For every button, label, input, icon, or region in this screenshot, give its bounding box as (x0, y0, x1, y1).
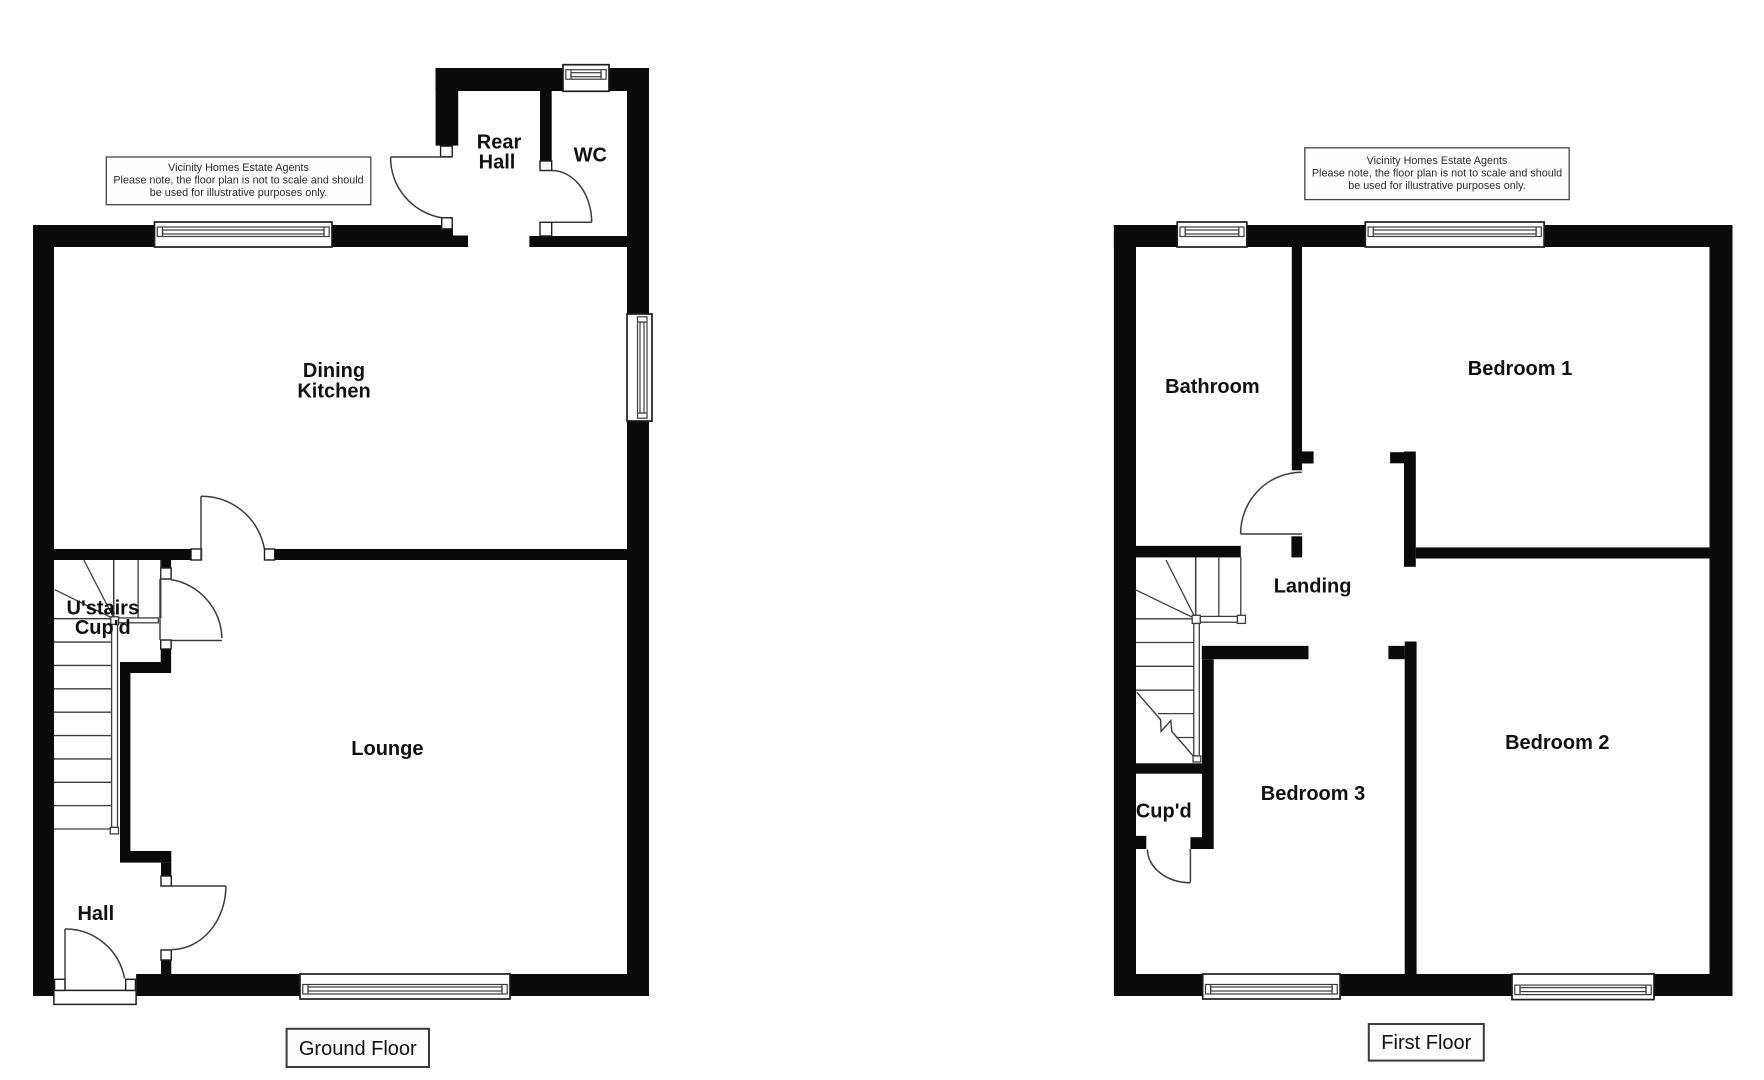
svg-text:Please note, the floor plan is: Please note, the floor plan is not to sc… (113, 175, 363, 187)
svg-text:Cup'd: Cup'd (1136, 801, 1192, 823)
svg-text:Cup'd: Cup'd (75, 617, 131, 639)
svg-text:Bathroom: Bathroom (1165, 376, 1259, 398)
svg-text:Lounge: Lounge (351, 738, 423, 760)
svg-text:Kitchen: Kitchen (297, 381, 370, 403)
svg-text:be used for illustrative purpo: be used for illustrative purposes only. (1348, 180, 1525, 192)
svg-text:be used for illustrative purpo: be used for illustrative purposes only. (150, 187, 327, 199)
svg-text:Bedroom 2: Bedroom 2 (1505, 732, 1609, 754)
svg-text:Hall: Hall (77, 903, 114, 925)
svg-text:Bedroom 1: Bedroom 1 (1468, 358, 1572, 380)
svg-text:Hall: Hall (479, 152, 516, 174)
svg-text:First Floor: First Floor (1381, 1032, 1471, 1054)
svg-text:Landing: Landing (1274, 576, 1352, 598)
svg-text:Rear: Rear (477, 132, 522, 154)
svg-text:Ground Floor: Ground Floor (299, 1038, 417, 1060)
svg-text:Bedroom 3: Bedroom 3 (1261, 783, 1365, 805)
svg-text:Dining: Dining (303, 360, 365, 382)
svg-text:Vicinity Homes Estate Agents: Vicinity Homes Estate Agents (1367, 155, 1508, 167)
svg-text:WC: WC (574, 145, 607, 167)
svg-text:Vicinity Homes Estate Agents: Vicinity Homes Estate Agents (168, 162, 309, 174)
svg-text:Please note, the floor plan is: Please note, the floor plan is not to sc… (1312, 168, 1562, 180)
